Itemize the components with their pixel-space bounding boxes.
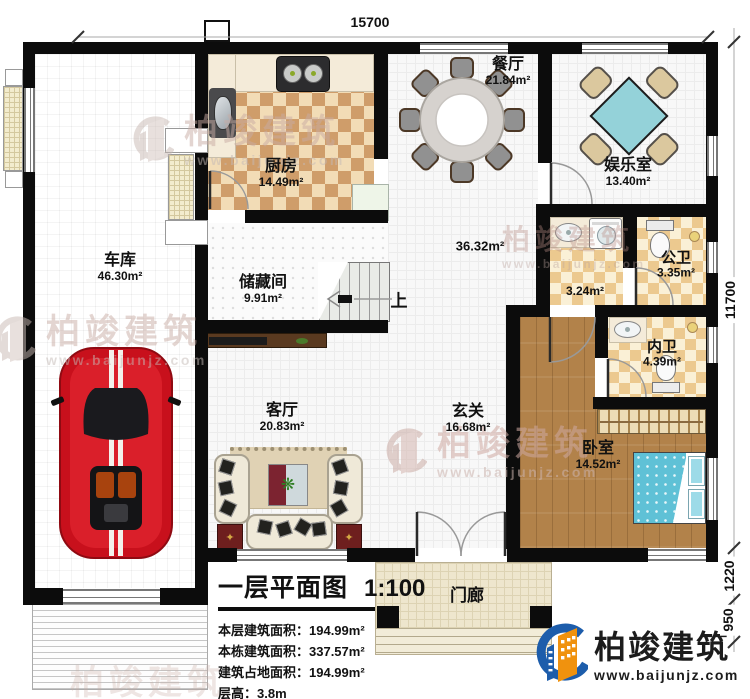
entry-door-opening: [415, 549, 507, 562]
wall: [506, 317, 520, 548]
toilet-tank: [652, 382, 680, 393]
brand-logo: 柏竣建筑 www.baijunjz.com: [534, 620, 739, 694]
room-area: 14.49m²: [259, 176, 304, 190]
wall: [550, 204, 718, 217]
side-steps: [168, 154, 194, 220]
corridor-area-label: 3.24m²: [566, 285, 604, 299]
logo-url-text: www.baijunjz.com: [594, 667, 739, 683]
wardrobe: [597, 409, 706, 434]
cushion: [257, 519, 274, 536]
bedroom-entry-floor: [520, 317, 595, 548]
room-area: 9.91m²: [239, 292, 287, 306]
toilet-tank: [646, 220, 674, 231]
table-motif-icon: ✦: [225, 531, 234, 544]
title-block: 一层平面图 1:100 本层建筑面积：194.99m² 本栋建筑面积：337.5…: [218, 568, 425, 699]
hall-area-label: 36.32m²: [456, 240, 504, 255]
room-label-public-bath: 公卫 3.35m²: [657, 249, 695, 280]
corridor-sink: [555, 223, 582, 242]
dimension-right-steps: 950: [720, 604, 736, 635]
coffee-table: ❋: [268, 464, 308, 506]
window: [707, 458, 718, 520]
door-opening: [550, 305, 595, 317]
wall: [160, 588, 208, 605]
info-floor-area: 本层建筑面积：194.99m²: [218, 620, 425, 641]
wall: [595, 305, 718, 317]
burner-icon: [304, 64, 323, 83]
window: [582, 43, 668, 54]
wall: [195, 548, 237, 562]
wall: [23, 588, 63, 605]
inner-bath-sink: [614, 321, 641, 338]
title-underline: [218, 607, 375, 611]
room-label-foyer: 玄关 16.68m²: [446, 403, 491, 435]
info-footprint-area: 建筑占地面积：194.99m²: [218, 662, 425, 683]
door-opening: [208, 210, 245, 223]
room-name: 餐厅: [486, 56, 531, 74]
room-label-inner-bath: 内卫 4.39m²: [643, 338, 681, 369]
logo-brand-text: 柏竣建筑: [594, 631, 739, 665]
dimension-right-porch: 1220: [721, 556, 737, 595]
wall: [623, 217, 637, 268]
room-area: 20.83m²: [260, 420, 305, 434]
staircase: [318, 262, 390, 322]
info-floor-height: 层高：3.8m: [218, 683, 425, 699]
room-area: 14.52m²: [576, 458, 621, 472]
wall: [505, 548, 648, 562]
side-table: ✦: [217, 524, 243, 550]
room-label-bedroom: 卧室 14.52m²: [576, 440, 621, 472]
bath-lamp-icon: [689, 231, 700, 242]
room-label-dining: 餐厅 21.84m²: [486, 56, 531, 88]
bed: [633, 452, 706, 524]
window: [707, 327, 718, 363]
cushion: [311, 521, 327, 537]
room-name: 厨房: [259, 158, 304, 176]
room-name: 门廊: [450, 586, 484, 606]
garage-door-opening: [63, 589, 160, 604]
room-label-garage: 车库 46.30m²: [98, 252, 143, 284]
exterior-planter: [3, 86, 23, 171]
window: [707, 242, 718, 273]
window: [24, 88, 35, 172]
driveway-ramp: [32, 604, 208, 690]
side-landing: [165, 128, 208, 153]
door-opening: [538, 163, 552, 204]
pillow: [689, 490, 704, 518]
room-label-living: 客厅 20.83m²: [260, 402, 305, 434]
window: [237, 549, 347, 561]
door-opening: [595, 358, 608, 397]
planter-cap: [5, 171, 23, 188]
wall: [374, 43, 388, 159]
floor-plan-canvas: ❋ ✦ ✦: [0, 0, 750, 699]
washing-machine: [589, 218, 622, 249]
plant-icon: ❋: [281, 475, 295, 495]
room-label-porch: 门廊: [450, 586, 484, 606]
room-area: 3.24m²: [566, 285, 604, 299]
room-label-storage: 储藏间 9.91m²: [239, 274, 287, 306]
room-name: 公卫: [657, 249, 695, 266]
wall: [245, 210, 388, 223]
dimension-top: 15700: [347, 14, 394, 30]
cushion: [218, 480, 235, 497]
info-building-area: 本栋建筑面积：337.57m²: [218, 641, 425, 662]
planter-cap: [5, 69, 23, 86]
wall: [506, 305, 550, 317]
room-name: 车库: [98, 252, 143, 270]
wall: [595, 317, 608, 358]
room-name: 储藏间: [239, 274, 287, 292]
wall: [593, 397, 718, 409]
window: [420, 43, 508, 54]
wall: [347, 548, 415, 562]
room-area: 16.68m²: [446, 421, 491, 435]
side-landing: [165, 220, 208, 245]
table-motif-icon: ✦: [344, 531, 353, 544]
room-name: 内卫: [643, 338, 681, 355]
room-area: 46.30m²: [98, 270, 143, 284]
door-opening: [623, 268, 637, 305]
exterior-vent: [204, 20, 230, 42]
burner-icon: [283, 64, 302, 83]
wall: [538, 43, 552, 163]
plan-title: 一层平面图: [218, 568, 348, 604]
room-area: 13.40m²: [604, 175, 652, 189]
stairs-up-label: 上: [391, 287, 408, 312]
tv-cabinet: [200, 333, 327, 348]
window: [707, 136, 718, 176]
room-name: 娱乐室: [604, 157, 652, 175]
room-name: 客厅: [260, 402, 305, 420]
wall: [536, 204, 550, 317]
room-area: 4.39m²: [643, 356, 681, 370]
room-label-kitchen: 厨房 14.49m²: [259, 158, 304, 190]
room-name: 卧室: [576, 440, 621, 458]
room-area: 21.84m²: [486, 74, 531, 88]
bath-lamp-icon: [687, 322, 698, 333]
wall: [195, 320, 388, 333]
room-label-entertainment: 娱乐室 13.40m²: [604, 157, 652, 189]
stove: [276, 56, 330, 92]
room-name: 玄关: [446, 403, 491, 421]
room-area: 36.32m²: [456, 240, 504, 255]
bed-blanket: [634, 453, 686, 523]
room-area: 3.35m²: [657, 267, 695, 281]
pillow: [689, 457, 704, 485]
logo-icon: [534, 620, 588, 694]
cushion: [333, 480, 349, 496]
window: [648, 549, 706, 561]
kitchen-sink: [209, 88, 236, 138]
dimension-right-main: 11700: [722, 277, 738, 323]
side-table: ✦: [336, 524, 362, 550]
plan-scale: 1:100: [364, 575, 425, 603]
